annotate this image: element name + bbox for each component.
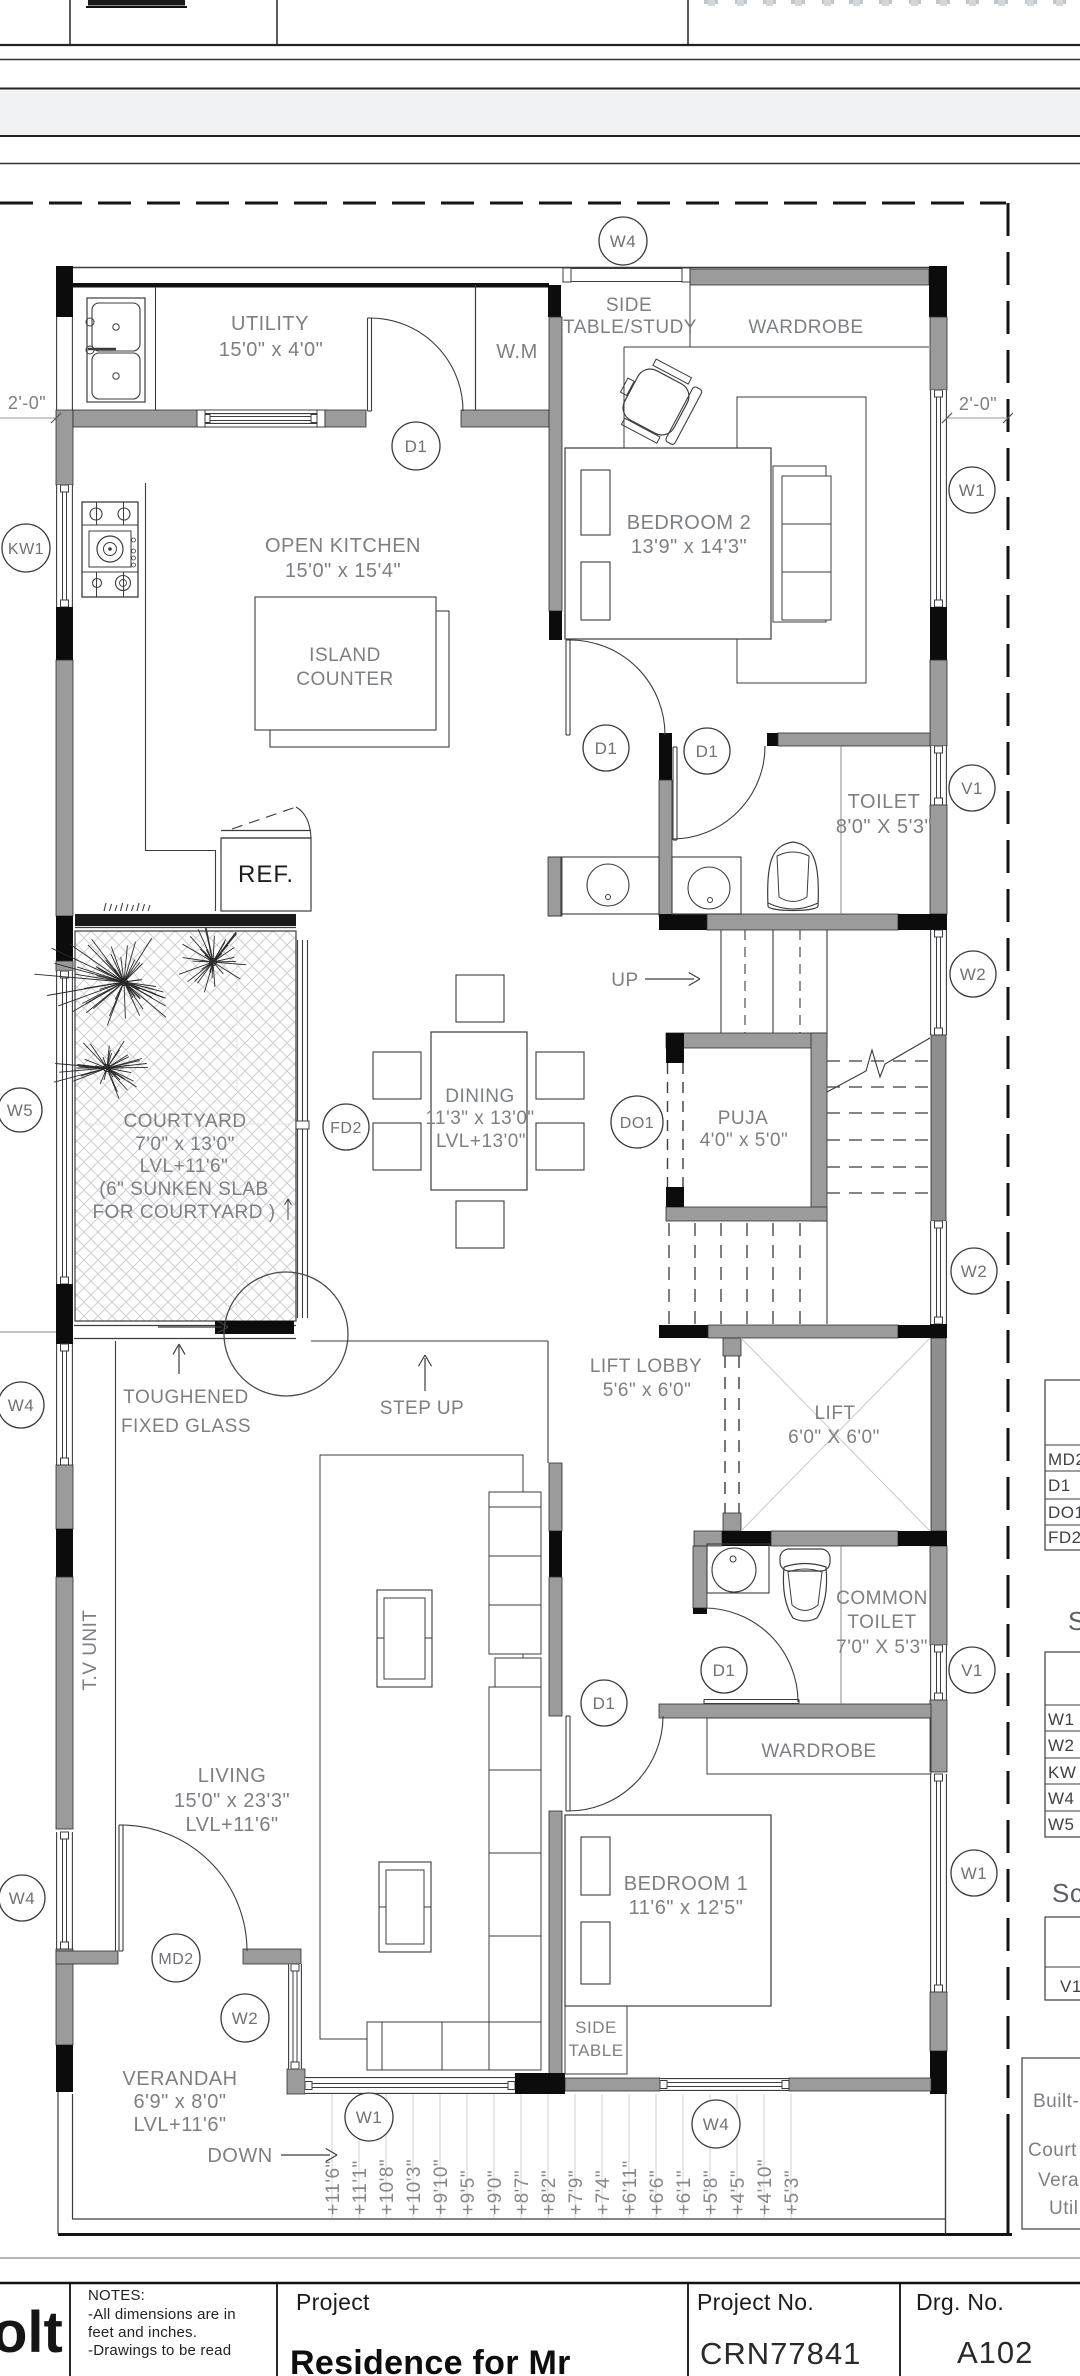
svg-text:FIXED GLASS: FIXED GLASS bbox=[121, 1416, 251, 1437]
svg-text:D1: D1 bbox=[696, 742, 719, 761]
svg-text:15'0" x 4'0": 15'0" x 4'0" bbox=[219, 339, 324, 361]
svg-text:DO1: DO1 bbox=[620, 1115, 654, 1132]
svg-text:Vera: Vera bbox=[1038, 2170, 1079, 2191]
svg-text:V1: V1 bbox=[961, 1661, 983, 1680]
svg-text:Project No.: Project No. bbox=[697, 2289, 814, 2315]
svg-text:W.M: W.M bbox=[496, 341, 538, 363]
svg-text:TOILET: TOILET bbox=[847, 1612, 916, 1633]
svg-text:-Drawings to be read: -Drawings to be read bbox=[88, 2342, 231, 2359]
svg-text:TOILET: TOILET bbox=[848, 791, 921, 813]
svg-text:+6'1": +6'1" bbox=[674, 2170, 695, 2215]
svg-text:W4: W4 bbox=[1048, 1789, 1075, 1808]
svg-text:W2: W2 bbox=[960, 965, 987, 984]
svg-text:W1: W1 bbox=[959, 481, 986, 500]
svg-text:4'0" x 5'0": 4'0" x 5'0" bbox=[700, 1130, 789, 1151]
svg-text:11'3" x 13'0": 11'3" x 13'0" bbox=[425, 1108, 534, 1129]
svg-text:+9'10": +9'10" bbox=[431, 2159, 452, 2215]
svg-text:Court: Court bbox=[1028, 2140, 1077, 2161]
svg-text:15'0" x 23'3": 15'0" x 23'3" bbox=[174, 1790, 290, 1812]
svg-text:CRN77841: CRN77841 bbox=[700, 2336, 861, 2371]
svg-text:W1: W1 bbox=[356, 2108, 383, 2127]
svg-text:D1: D1 bbox=[405, 437, 428, 456]
svg-text:T.V UNIT: T.V UNIT bbox=[80, 1609, 101, 1690]
svg-text:WARDROBE: WARDROBE bbox=[761, 1741, 876, 1762]
svg-text:Built-u: Built-u bbox=[1033, 2091, 1080, 2112]
svg-text:V1: V1 bbox=[961, 779, 983, 798]
svg-text:6'0" X 6'0": 6'0" X 6'0" bbox=[788, 1427, 880, 1448]
svg-text:+9'5": +9'5" bbox=[458, 2170, 479, 2215]
svg-text:+10'8": +10'8" bbox=[377, 2159, 398, 2215]
svg-text:D1: D1 bbox=[713, 1661, 736, 1680]
svg-text:olt: olt bbox=[0, 2300, 63, 2365]
svg-text:(6" SUNKEN SLAB: (6" SUNKEN SLAB bbox=[99, 1179, 268, 1200]
svg-text:6'9" x 8'0": 6'9" x 8'0" bbox=[134, 2091, 227, 2113]
svg-text:FOR COURTYARD ): FOR COURTYARD ) bbox=[92, 1202, 275, 1223]
svg-text:-All dimensions are in: -All dimensions are in bbox=[88, 2306, 236, 2323]
svg-text:+7'9": +7'9" bbox=[566, 2170, 587, 2215]
svg-text:PUJA: PUJA bbox=[718, 1108, 769, 1129]
svg-text:LIFT: LIFT bbox=[814, 1403, 855, 1424]
svg-text:+7'4": +7'4" bbox=[593, 2170, 614, 2215]
svg-text:DO1: DO1 bbox=[1048, 1503, 1080, 1522]
svg-text:COUNTER: COUNTER bbox=[296, 669, 393, 690]
svg-text:W4: W4 bbox=[9, 1889, 36, 1908]
svg-text:Residence for Mr: Residence for Mr bbox=[290, 2344, 571, 2376]
svg-text:13'9" x 14'3": 13'9" x 14'3" bbox=[631, 536, 747, 558]
svg-text:LVL+11'6": LVL+11'6" bbox=[133, 2114, 226, 2136]
svg-text:TOUGHENED: TOUGHENED bbox=[123, 1387, 249, 1408]
svg-text:COMMON: COMMON bbox=[836, 1588, 928, 1609]
svg-text:S: S bbox=[1068, 1606, 1080, 1636]
svg-text:W4: W4 bbox=[703, 2115, 730, 2134]
svg-text:KW: KW bbox=[1048, 1763, 1076, 1782]
svg-text:DOWN: DOWN bbox=[207, 2145, 272, 2167]
svg-text:STEP UP: STEP UP bbox=[380, 1398, 464, 1419]
svg-text:A102: A102 bbox=[957, 2335, 1033, 2370]
svg-text:+10'3": +10'3" bbox=[404, 2159, 425, 2215]
svg-text:Sc: Sc bbox=[1052, 1878, 1080, 1908]
svg-text:+4'10": +4'10" bbox=[755, 2159, 776, 2215]
svg-text:COURTYARD: COURTYARD bbox=[123, 1111, 246, 1132]
svg-text:VERANDAH: VERANDAH bbox=[122, 2068, 237, 2090]
svg-text:W4: W4 bbox=[610, 232, 637, 251]
svg-text:Drg. No.: Drg. No. bbox=[916, 2289, 1004, 2315]
svg-text:15'0" x 15'4": 15'0" x 15'4" bbox=[285, 560, 401, 582]
svg-text:+6'6": +6'6" bbox=[647, 2170, 668, 2215]
svg-text:LVL+13'0": LVL+13'0" bbox=[436, 1131, 526, 1152]
svg-text:BEDROOM 2: BEDROOM 2 bbox=[627, 512, 752, 534]
svg-text:WARDROBE: WARDROBE bbox=[748, 317, 863, 338]
svg-text:TABLE: TABLE bbox=[568, 2041, 623, 2060]
svg-text:+6'11": +6'11" bbox=[620, 2160, 641, 2215]
svg-text:REF.: REF. bbox=[238, 861, 294, 888]
svg-text:FD2: FD2 bbox=[1048, 1528, 1080, 1547]
svg-text:+5'8": +5'8" bbox=[701, 2170, 722, 2215]
svg-text:11'6" x 12'5": 11'6" x 12'5" bbox=[629, 1897, 744, 1919]
svg-text:5'6" x 6'0": 5'6" x 6'0" bbox=[603, 1380, 692, 1401]
svg-text:MD2: MD2 bbox=[158, 1951, 193, 1968]
svg-text:LIVING: LIVING bbox=[198, 1765, 267, 1787]
svg-text:FD2: FD2 bbox=[330, 1120, 362, 1137]
svg-text:ISLAND: ISLAND bbox=[309, 645, 381, 666]
svg-text:LVL+11'6": LVL+11'6" bbox=[185, 1814, 278, 1836]
svg-text:2'-0": 2'-0" bbox=[959, 394, 997, 414]
svg-text:W2: W2 bbox=[961, 1262, 988, 1281]
svg-text:2'-0": 2'-0" bbox=[8, 393, 46, 413]
svg-text:MD2: MD2 bbox=[1048, 1450, 1080, 1469]
svg-text:feet and inches.: feet and inches. bbox=[88, 2324, 197, 2341]
svg-text:W5: W5 bbox=[7, 1101, 34, 1120]
svg-text:7'0" X 5'3": 7'0" X 5'3" bbox=[836, 1637, 928, 1658]
svg-text:DINING: DINING bbox=[445, 1086, 515, 1107]
svg-text:+11'6": +11'6" bbox=[323, 2160, 344, 2215]
svg-text:UP: UP bbox=[611, 970, 638, 991]
svg-text:LVL+11'6": LVL+11'6" bbox=[140, 1156, 229, 1177]
svg-text:7'0" x 13'0": 7'0" x 13'0" bbox=[135, 1134, 235, 1155]
svg-text:W4: W4 bbox=[8, 1396, 35, 1415]
svg-text:BEDROOM 1: BEDROOM 1 bbox=[624, 1873, 749, 1895]
svg-text:8'0" X 5'3": 8'0" X 5'3" bbox=[836, 816, 932, 838]
svg-text:+9'0": +9'0" bbox=[485, 2170, 506, 2215]
svg-text:+11'1": +11'1" bbox=[350, 2160, 371, 2215]
svg-text:W2: W2 bbox=[232, 2009, 259, 2028]
svg-text:UTILITY: UTILITY bbox=[231, 313, 309, 335]
svg-text:OPEN KITCHEN: OPEN KITCHEN bbox=[265, 535, 421, 557]
svg-text:W1: W1 bbox=[961, 1864, 988, 1883]
svg-text:D1: D1 bbox=[1048, 1476, 1071, 1495]
svg-text:SIDE: SIDE bbox=[606, 295, 652, 316]
svg-text:SIDE: SIDE bbox=[575, 2018, 617, 2037]
svg-text:W2: W2 bbox=[1048, 1736, 1075, 1755]
svg-text:Util: Util bbox=[1049, 2198, 1078, 2219]
svg-text:V1: V1 bbox=[1060, 1977, 1080, 1996]
svg-text:D1: D1 bbox=[595, 739, 618, 758]
svg-text:KW1: KW1 bbox=[8, 541, 44, 558]
svg-text:+5'3": +5'3" bbox=[782, 2170, 803, 2215]
svg-text:W1: W1 bbox=[1048, 1710, 1075, 1729]
svg-text:NOTES:: NOTES: bbox=[88, 2287, 145, 2304]
svg-text:Project: Project bbox=[296, 2289, 370, 2315]
svg-text:+4'5": +4'5" bbox=[728, 2170, 749, 2215]
svg-text:D1: D1 bbox=[593, 1694, 616, 1713]
svg-text:W5: W5 bbox=[1048, 1815, 1075, 1834]
svg-text:TABLE/STUDY: TABLE/STUDY bbox=[563, 317, 697, 338]
svg-text:+8'2": +8'2" bbox=[539, 2170, 560, 2215]
svg-text:LIFT LOBBY: LIFT LOBBY bbox=[590, 1356, 702, 1377]
svg-text:+8'7": +8'7" bbox=[512, 2170, 533, 2215]
